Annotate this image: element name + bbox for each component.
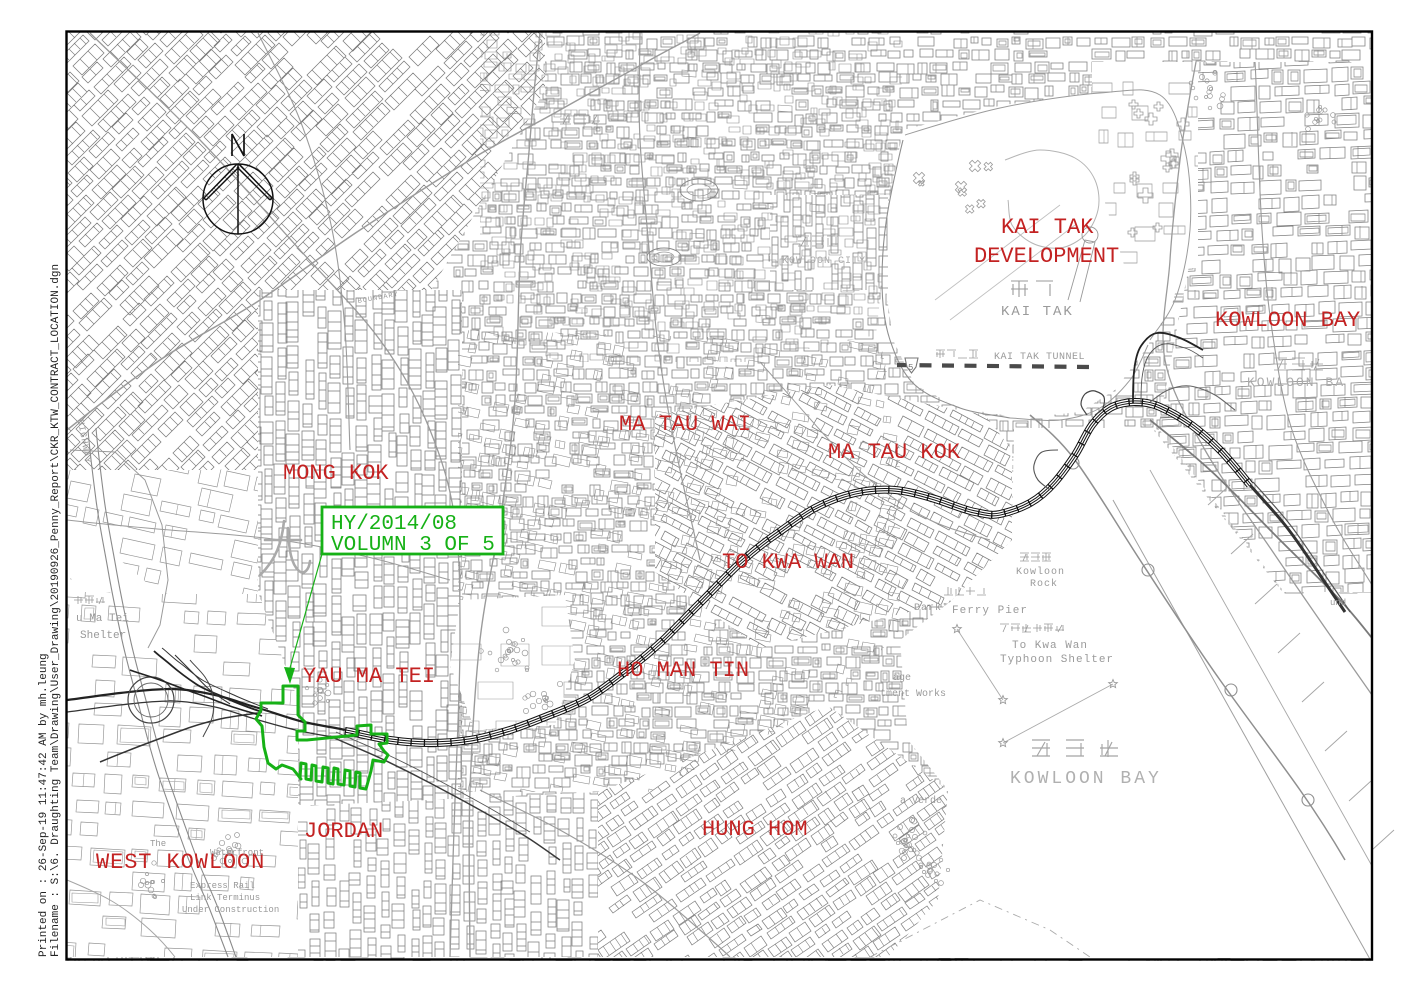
svg-text:KOWLOON BA: KOWLOON BA	[1247, 375, 1345, 390]
svg-text:und: und	[1330, 598, 1346, 608]
svg-text:Under Construction: Under Construction	[182, 905, 279, 915]
svg-text:MONG KOK: MONG KOK	[283, 461, 389, 486]
svg-text:HUNG HOM: HUNG HOM	[702, 817, 808, 842]
svg-text:5: 5	[908, 363, 913, 373]
svg-text:TO KWA WAN: TO KWA WAN	[722, 550, 854, 575]
svg-text:Printed on : 26-Sep-19 11:47: Printed on : 26-Sep-19 11:47:42 AM by mh…	[38, 653, 50, 957]
svg-text:To Kwa Wan: To Kwa Wan	[1012, 640, 1088, 652]
svg-text:YAU MA TEI: YAU MA TEI	[303, 664, 435, 689]
svg-text:age: age	[893, 673, 911, 684]
svg-text:Express Rail: Express Rail	[190, 881, 255, 891]
svg-text:Link Terminus: Link Terminus	[190, 893, 260, 903]
svg-text:KOWLOON CITY: KOWLOON CITY	[782, 256, 866, 267]
svg-text:Waterfront: Waterfront	[210, 848, 264, 858]
svg-text:HO MAN TIN: HO MAN TIN	[617, 658, 749, 683]
svg-text:KOWLOON BAY: KOWLOON BAY	[1215, 308, 1360, 333]
svg-text:tment Works: tment Works	[880, 688, 946, 700]
svg-text:KOWLOON BAY: KOWLOON BAY	[1010, 769, 1162, 789]
svg-text:The: The	[150, 839, 166, 849]
svg-text:KAI TAK TUNNEL: KAI TAK TUNNEL	[994, 352, 1085, 363]
svg-text:Typhoon Shelter: Typhoon Shelter	[1000, 654, 1114, 666]
svg-text:DEVELOPMENT: DEVELOPMENT	[974, 244, 1119, 269]
svg-text:Filename : S:\6. Draughting: Filename : S:\6. Draughting Team\Drawing…	[50, 264, 62, 957]
svg-text:Park: Park	[914, 602, 942, 614]
svg-text:Rock: Rock	[1030, 578, 1058, 590]
svg-text:MA TAU WAI: MA TAU WAI	[619, 412, 751, 437]
svg-text:Shelter: Shelter	[80, 630, 126, 642]
svg-text:KAI TAK: KAI TAK	[1001, 304, 1074, 320]
svg-text:Ferry Pier: Ferry Pier	[952, 605, 1028, 617]
svg-text:JORDAN: JORDAN	[304, 819, 383, 844]
svg-text:KAI TAK: KAI TAK	[1001, 215, 1094, 240]
svg-text:Kowloon: Kowloon	[1016, 566, 1065, 578]
svg-text:a Verde: a Verde	[900, 795, 942, 807]
svg-text:u Ma Tei: u Ma Tei	[76, 613, 129, 625]
svg-text:HY/2014/08: HY/2014/08	[331, 513, 457, 536]
svg-text:MA TAU KOK: MA TAU KOK	[828, 440, 961, 465]
svg-text:VOLUMN 3 OF 5: VOLUMN 3 OF 5	[331, 534, 495, 557]
